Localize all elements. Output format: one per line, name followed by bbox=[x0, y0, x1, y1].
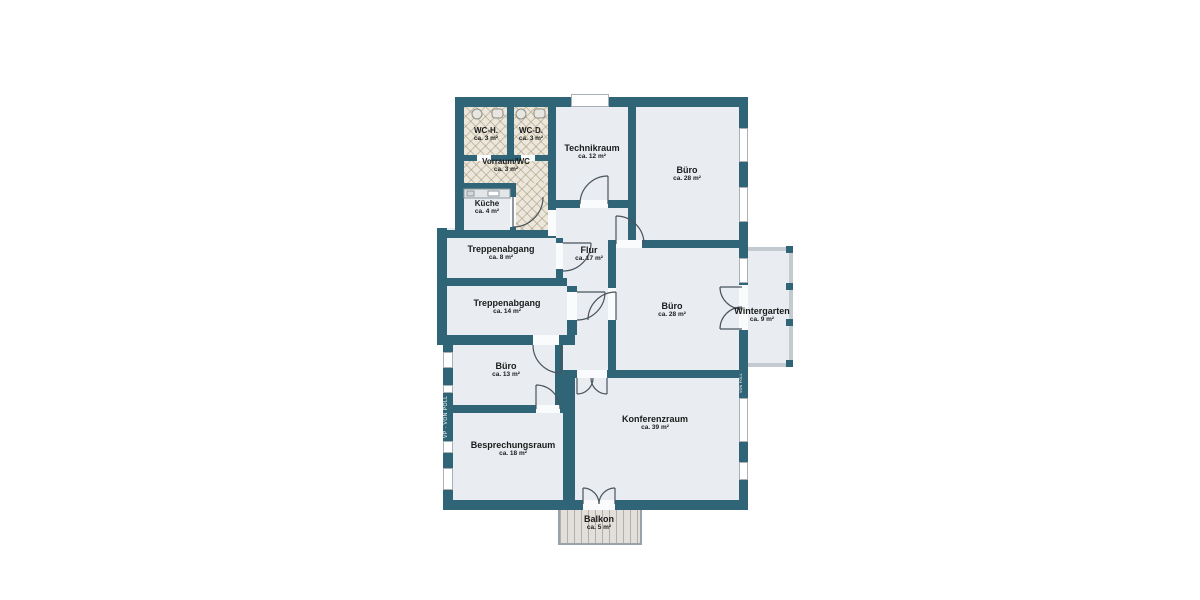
doors-and-fixtures-layer bbox=[0, 0, 1200, 600]
room-label-wintergarten: Wintergarten ca. 9 m² bbox=[734, 306, 789, 324]
room-label-kueche: Küche ca. 4 m² bbox=[475, 199, 499, 216]
room-label-flur: Flur ca. 17 m² bbox=[575, 245, 603, 263]
room-label-wc-h: WC-H. ca. 3 m² bbox=[474, 126, 498, 143]
room-label-buero-oben: Büro ca. 28 m² bbox=[673, 165, 701, 183]
room-label-technikraum: Technikraum ca. 12 m² bbox=[564, 143, 619, 161]
room-label-treppenabgang-8: Treppenabgang ca. 8 m² bbox=[467, 244, 534, 262]
room-label-buero-mitte: Büro ca. 28 m² bbox=[658, 301, 686, 319]
room-label-wc-d: WC-D. ca. 3 m² bbox=[519, 126, 543, 143]
room-label-buero-13: Büro ca. 13 m² bbox=[492, 361, 520, 379]
room-label-balkon: Balkon ca. 5 m² bbox=[584, 514, 614, 532]
room-label-vorraum: Vorraum/WC ca. 3 m² bbox=[482, 157, 530, 174]
room-label-besprechungsraum: Besprechungsraum ca. 18 m² bbox=[471, 440, 556, 458]
floor-plan-canvas: VP · VON POLL VON POLL bbox=[0, 0, 1200, 600]
room-label-treppenabgang-14: Treppenabgang ca. 14 m² bbox=[473, 298, 540, 316]
room-label-konferenzraum: Konferenzraum ca. 39 m² bbox=[622, 414, 688, 432]
